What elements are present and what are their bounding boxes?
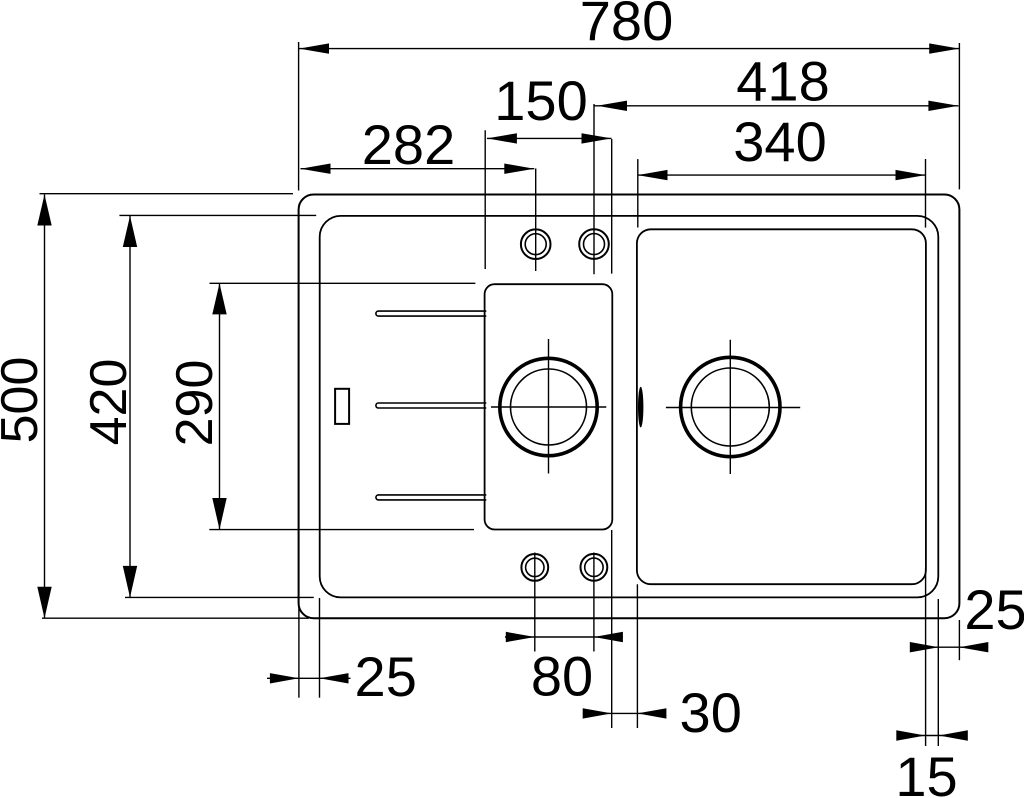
svg-text:290: 290 — [166, 360, 224, 447]
svg-text:282: 282 — [362, 113, 455, 176]
svg-text:15: 15 — [895, 745, 957, 798]
svg-text:420: 420 — [80, 359, 138, 446]
svg-text:25: 25 — [964, 578, 1024, 641]
svg-text:80: 80 — [531, 645, 593, 708]
svg-text:500: 500 — [0, 357, 49, 444]
svg-text:340: 340 — [733, 110, 826, 173]
svg-text:25: 25 — [355, 645, 417, 708]
svg-text:780: 780 — [580, 0, 673, 52]
svg-text:150: 150 — [494, 69, 587, 132]
svg-text:30: 30 — [680, 681, 742, 744]
svg-text:418: 418 — [736, 50, 829, 113]
